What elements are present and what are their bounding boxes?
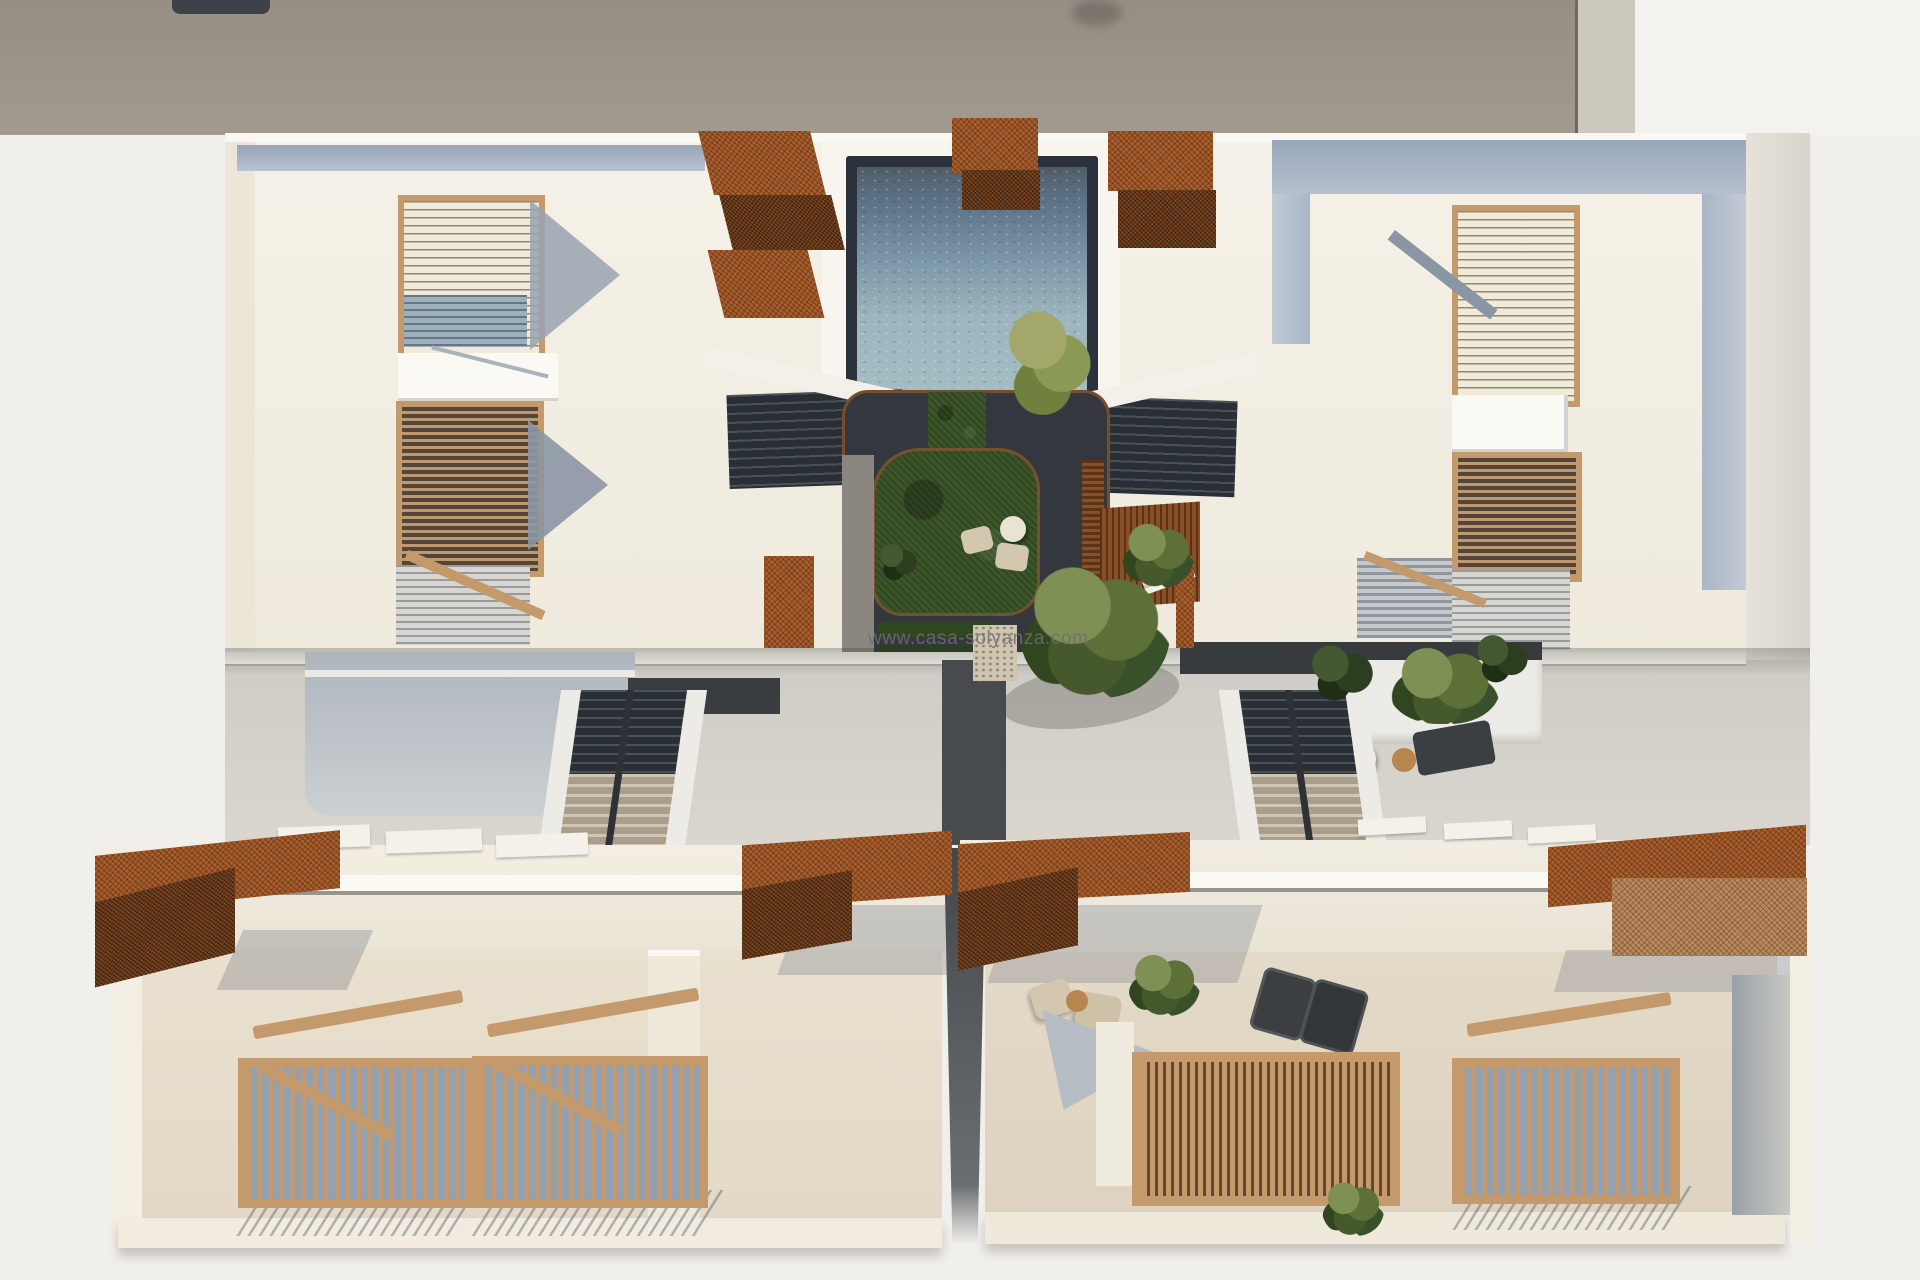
neighbor-roof-taupe [0,0,1575,135]
right-wing-lightwell-band-top [1272,140,1746,194]
corten-stair-box-left-lower [708,250,825,318]
terrace-plant [1468,628,1530,684]
right-block-wall-recess [1732,975,1790,1215]
garden-coffee-table [1000,516,1026,542]
neighbor-roof-white [1635,0,1920,135]
right-wing-lower-louver-balcony [1452,452,1582,582]
wood-slat-fence [472,1056,708,1208]
garden-shrub [874,538,918,582]
terrace-side-table [1066,990,1088,1012]
white-wall-plank [496,832,589,857]
roof-chimney [172,0,270,14]
left-wing-lightwell-band [237,145,705,171]
right-wing-white-balcony [1452,395,1568,452]
left-wing-lower-louver-balcony [396,401,544,577]
corten-box-pool-right-side [962,170,1040,210]
wall-ledge-line [305,670,635,677]
watermark-text: www.casa-solyanza.com [868,628,1128,654]
garden-lounge-chair [994,542,1029,572]
right-wing-upper-louver-balcony [1452,205,1580,407]
right-wing-lightwell-band-left [1272,194,1310,344]
right-block-east-wall [1790,952,1812,1244]
corten-stair-box-right-top [1108,131,1213,191]
pergola-shadow [217,930,374,990]
right-wing-lightwell-band-right [1702,194,1746,590]
left-wing-upper-louver-glass [404,295,527,347]
corten-box-pool-right-top [952,118,1038,173]
roof-shadow-smudge [1072,0,1122,26]
corten-stair-box-left-top [698,131,826,195]
wood-slat-fence [1452,1058,1680,1204]
right-side-wall [1746,133,1810,660]
terrace-plant [1322,1178,1384,1236]
pool-side-plant [1000,300,1095,415]
architectural-render-scene: www.casa-solyanza.com [0,0,1920,1280]
corten-mesh-screen [764,556,814,648]
terrace-plant [1300,638,1376,702]
wood-slat-fence [238,1058,474,1208]
corten-stair-box-right-side [1118,190,1216,248]
courtyard-tree-small [1122,518,1194,588]
terrace-pouf [1392,748,1416,772]
corten-stair-box-left-side [719,195,845,250]
corten-pergola-far-right-side [1612,878,1807,956]
terrace-plant [1128,950,1200,1016]
white-wall-plank [386,828,483,853]
left-wing-edge-shading [225,142,255,660]
central-walkway [942,660,1006,845]
neighbor-roof-edge-strip [1575,0,1638,135]
white-divider-wall [1096,1022,1134,1186]
left-block-west-wall [112,960,142,1246]
